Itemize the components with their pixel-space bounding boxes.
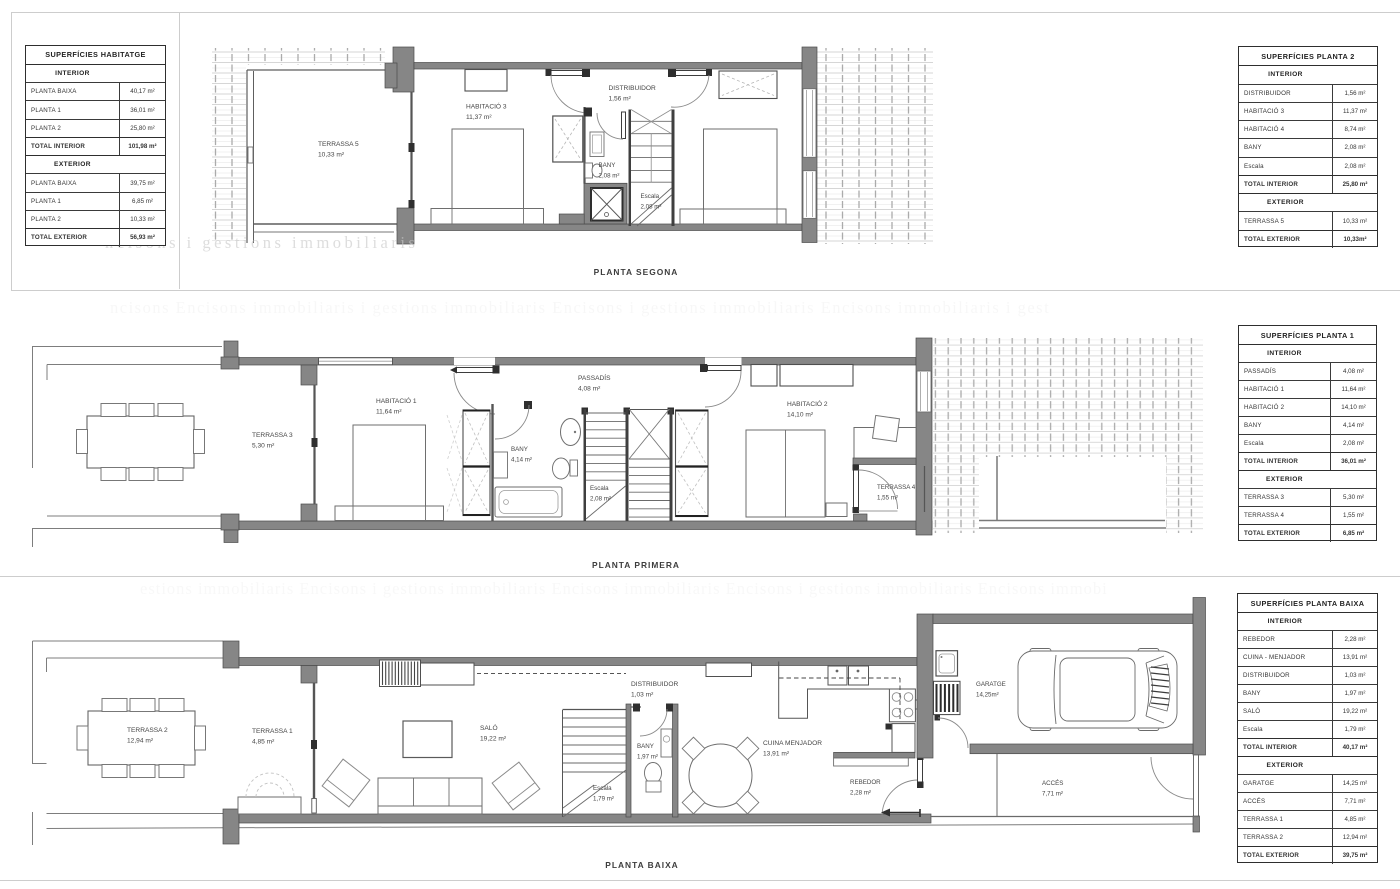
svg-text:7,71 m²: 7,71 m² [1042,791,1063,798]
svg-text:1,97 m²: 1,97 m² [637,754,658,761]
svg-text:TERRASSA 5: TERRASSA 5 [318,141,359,148]
svg-text:11,64 m²: 11,64 m² [376,409,402,416]
svg-text:12,94 m²: 12,94 m² [127,738,154,745]
svg-text:BANY: BANY [511,446,528,453]
svg-text:SALÓ: SALÓ [480,723,498,732]
svg-text:TERRASSA 2: TERRASSA 2 [127,727,168,734]
svg-text:HABITACIÓ 1: HABITACIÓ 1 [376,396,417,405]
svg-text:14,25m²: 14,25m² [976,692,999,699]
svg-text:CUINA MENJADOR: CUINA MENJADOR [763,740,822,747]
svg-text:13,91 m²: 13,91 m² [763,751,790,758]
svg-text:ACCÉS: ACCÉS [1042,780,1063,787]
svg-text:REBEDOR: REBEDOR [850,779,881,786]
svg-text:19,22 m²: 19,22 m² [480,736,507,743]
svg-text:DISTRIBUIDOR: DISTRIBUIDOR [609,85,656,92]
svg-text:2,28 m²: 2,28 m² [850,790,871,797]
svg-text:GARATGE: GARATGE [976,681,1006,688]
svg-text:11,37 m²: 11,37 m² [466,114,492,121]
svg-text:2,08 m²: 2,08 m² [590,496,611,503]
svg-text:Escala: Escala [590,485,609,492]
svg-text:1,56 m²: 1,56 m² [609,96,632,103]
svg-text:Escala: Escala [593,785,612,792]
svg-text:TERRASSA 3: TERRASSA 3 [252,432,293,439]
svg-text:BANY: BANY [599,162,616,169]
svg-text:DISTRIBUIDOR: DISTRIBUIDOR [631,681,678,688]
svg-text:4,85 m²: 4,85 m² [252,739,275,746]
svg-text:2,08 m²: 2,08 m² [599,173,620,180]
svg-text:BANY: BANY [637,743,654,750]
svg-text:10,33 m²: 10,33 m² [318,152,345,159]
svg-text:14,10 m²: 14,10 m² [787,412,814,419]
svg-text:1,03 m²: 1,03 m² [631,692,654,699]
svg-text:2,08 m²: 2,08 m² [641,204,662,211]
svg-text:1,79 m²: 1,79 m² [593,796,614,803]
svg-text:TERRASSA 4: TERRASSA 4 [877,484,916,491]
svg-text:5,30 m²: 5,30 m² [252,443,275,450]
svg-text:4,08 m²: 4,08 m² [578,386,601,393]
svg-text:HABITACIÓ 2: HABITACIÓ 2 [787,399,828,408]
svg-text:HABITACIÓ 3: HABITACIÓ 3 [466,102,507,111]
svg-text:Escala: Escala [641,193,660,200]
svg-text:PASSADÍS: PASSADÍS [578,373,611,382]
svg-text:4,14 m²: 4,14 m² [511,457,532,464]
svg-text:TERRASSA 1: TERRASSA 1 [252,728,293,735]
